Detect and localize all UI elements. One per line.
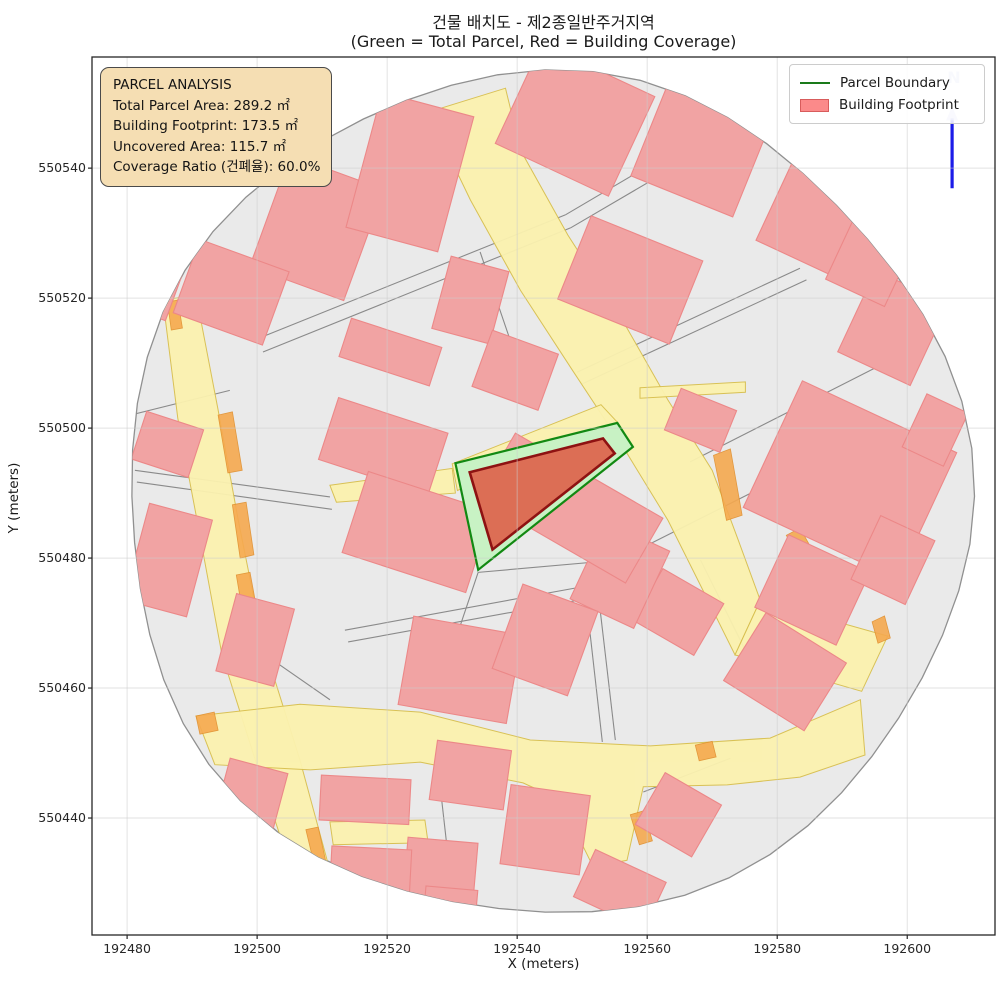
y-tick-label: 550540 [14, 160, 86, 176]
y-axis-label: Y (meters) [6, 438, 22, 558]
figure-window: { "figure": { "title": "건물 배치도 - 제2종일반주거… [0, 0, 1008, 990]
y-tick-label: 550520 [14, 290, 86, 306]
road-edge-orange-strip [695, 741, 716, 761]
info-line-footprint: Building Footprint: 173.5 ㎡ [113, 116, 319, 137]
x-tick-label: 192540 [482, 941, 552, 956]
y-tick-label: 550460 [14, 680, 86, 696]
y-tick-label: 550480 [14, 550, 86, 566]
legend-label: Building Footprint [839, 97, 959, 113]
info-line-total-area: Total Parcel Area: 289.2 ㎡ [113, 96, 319, 117]
building-polygon [500, 785, 590, 875]
x-axis-label: X (meters) [92, 956, 995, 972]
legend-entry-building-footprint: Building Footprint [800, 94, 974, 116]
info-line-coverage-ratio: Coverage Ratio (건폐율): 60.0% [113, 157, 319, 178]
x-tick-label: 192580 [742, 941, 812, 956]
x-tick-label: 192480 [92, 941, 162, 956]
parcel-analysis-info-box: PARCEL ANALYSIS Total Parcel Area: 289.2… [100, 67, 332, 187]
info-line-heading: PARCEL ANALYSIS [113, 75, 319, 96]
building-polygon [319, 775, 411, 825]
x-tick-label: 192600 [872, 941, 942, 956]
y-tick-label: 550440 [14, 810, 86, 826]
legend: Parcel Boundary Building Footprint [789, 64, 985, 124]
x-tick-label: 192560 [612, 941, 682, 956]
legend-entry-parcel-boundary: Parcel Boundary [800, 72, 974, 94]
building-footprint-patch-swatch [800, 99, 829, 112]
road-edge-orange-strip [196, 712, 218, 734]
parcel-boundary-line-swatch [800, 82, 830, 84]
building-polygon [429, 740, 511, 810]
x-tick-label: 192500 [222, 941, 292, 956]
info-line-uncovered: Uncovered Area: 115.7 ㎡ [113, 137, 319, 158]
legend-label: Parcel Boundary [840, 75, 950, 91]
x-tick-label: 192520 [352, 941, 422, 956]
y-tick-label: 550500 [14, 420, 86, 436]
